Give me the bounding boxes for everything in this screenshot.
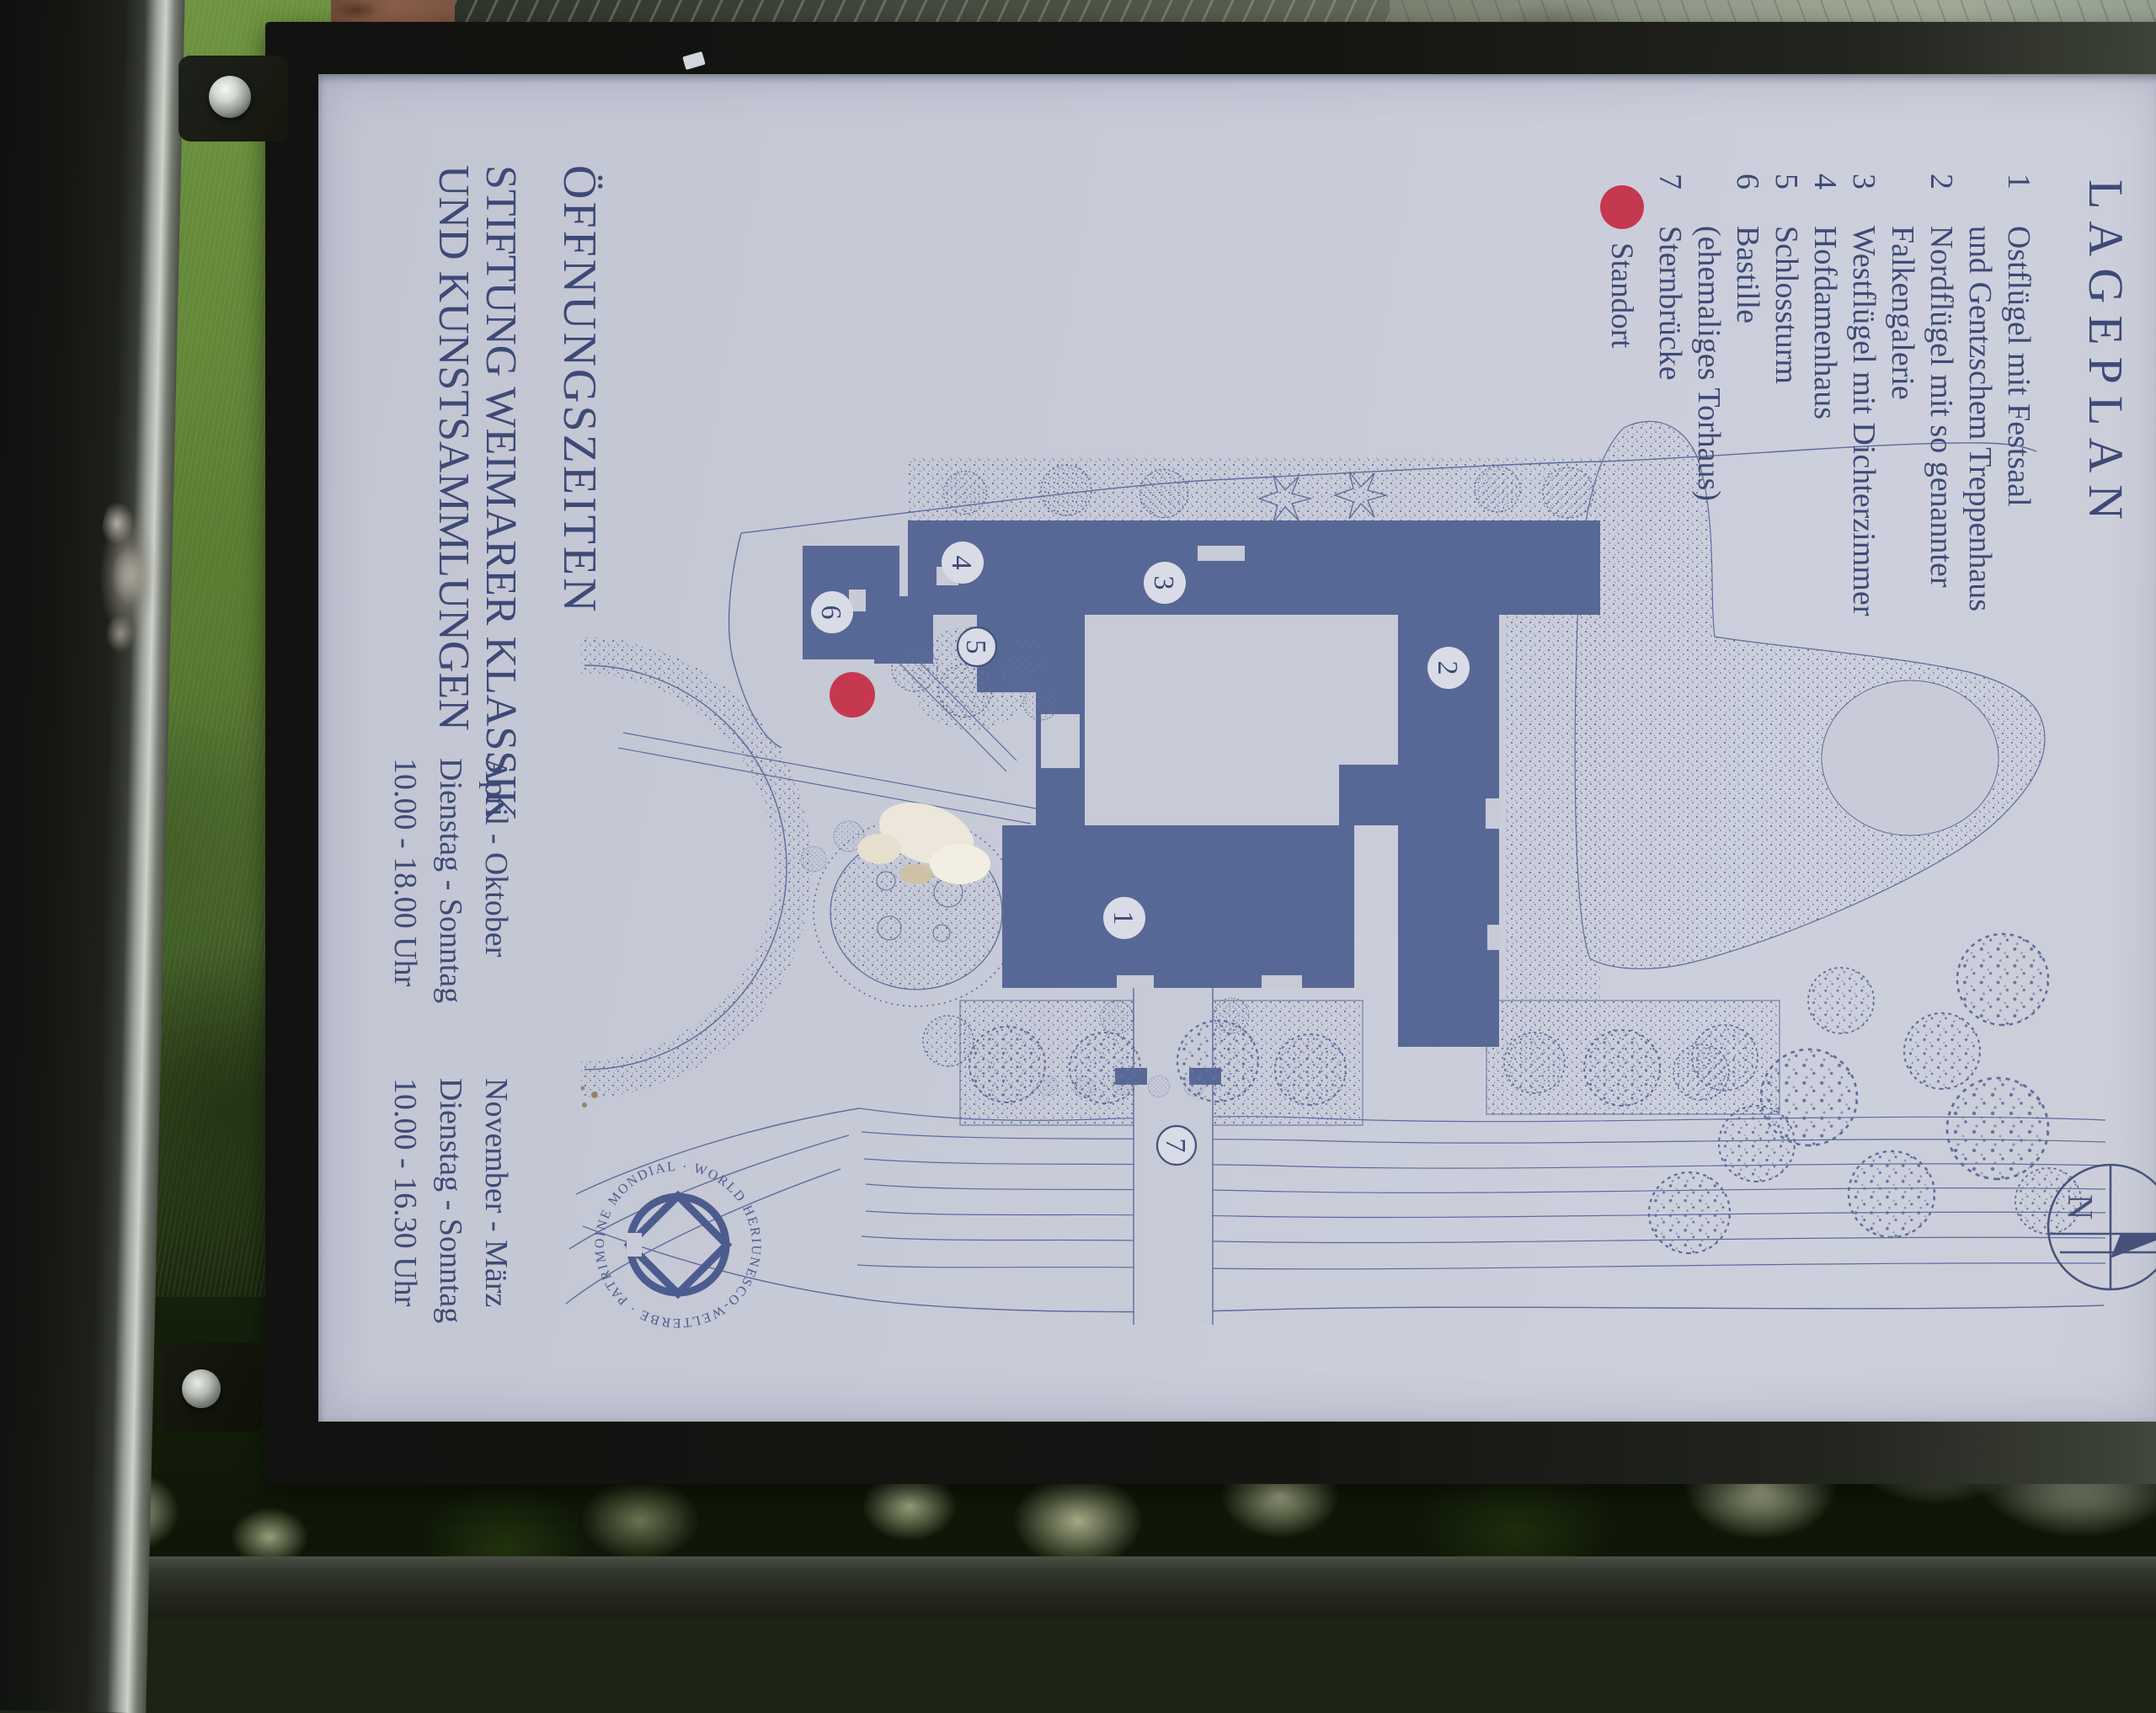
photo-of-site-plan-sign: { "sign": { "title": "LAGEPLAN", "legend…: [0, 0, 2156, 1617]
legend-row: 1Ostflügel mit Festsaal: [1999, 173, 2038, 616]
opening-hours-heading: ÖFFNUNGSZEITEN: [552, 165, 606, 615]
legend-row: 5Schlossturm: [1767, 173, 1806, 616]
legend-text: (ehemaliges Torhaus): [1689, 226, 1728, 501]
summer-period: April - Oktober: [473, 758, 519, 1003]
legend-row: 6Bastille: [1728, 173, 1767, 616]
map-standort-dot: [830, 672, 875, 718]
legend-row: 3Westflügel mit Dichterzimmer: [1844, 173, 1883, 616]
opening-column-winter: November - März Dienstag - Sonntag 10.00…: [382, 1078, 519, 1323]
legend-text: Nordflügel mit so genannter: [1922, 226, 1961, 588]
legend-row: und Gentzschem Treppenhaus: [1961, 173, 1999, 616]
winter-hours: 10.00 - 16.30 Uhr: [382, 1078, 428, 1323]
organization-name-line2: UND KUNSTSAMMLUNGEN: [429, 165, 478, 731]
legend-row: 4Hofdamenhaus: [1806, 173, 1844, 616]
legend-text: Schlossturm: [1767, 226, 1806, 384]
map-marker-label-6: 6: [815, 606, 846, 620]
map-marker-label-4: 4: [946, 556, 977, 570]
page-title: LAGEPLAN: [2078, 179, 2134, 531]
standort-label: Standort: [1604, 243, 1641, 348]
legend-number: [1961, 173, 1999, 226]
legend-text: Falkengalerie: [1883, 226, 1922, 400]
post-paint-scuff: [95, 483, 160, 668]
legend-number: 4: [1806, 173, 1844, 226]
legend-number: 1: [1999, 173, 2038, 226]
legend-text: Westflügel mit Dichterzimmer: [1844, 226, 1883, 616]
legend-list: 1Ostflügel mit Festsaalund Gentzschem Tr…: [1651, 173, 2038, 616]
winter-period: November - März: [473, 1078, 519, 1323]
bolt-icon-top: [209, 76, 251, 118]
standort-row: Standort: [1600, 185, 1644, 348]
map-marker-label-1: 1: [1107, 911, 1139, 926]
sign-frame: N UNESCO-WELTERBE · PATRIMOINE MONDIAL ·…: [265, 22, 2156, 1484]
legend-text: Sternbrücke: [1651, 226, 1689, 381]
legend-row: 7Sternbrücke: [1651, 173, 1689, 616]
bottom-rail: [0, 1556, 2156, 1617]
legend-row: 2Nordflügel mit so genannter: [1922, 173, 1961, 616]
emblem-gap: [627, 1233, 642, 1257]
map-marker-label-2: 2: [1432, 661, 1463, 675]
legend-text: Bastille: [1728, 226, 1767, 323]
legend-text: Ostflügel mit Festsaal: [1999, 226, 2038, 507]
legend-number: 6: [1728, 173, 1767, 226]
legend-text: und Gentzschem Treppenhaus: [1961, 226, 1999, 611]
legend-number: 2: [1922, 173, 1961, 226]
bolt-icon-bottom: [182, 1369, 221, 1408]
standort-dot-icon: [1600, 185, 1644, 229]
map-marker-label-5: 5: [960, 640, 991, 654]
legend-number: 3: [1844, 173, 1883, 226]
legend-number: [1689, 173, 1728, 226]
legend-row: (ehemaliges Torhaus): [1689, 173, 1728, 616]
legend-number: 7: [1651, 173, 1689, 226]
map-marker-label-7: 7: [1160, 1139, 1191, 1153]
legend-number: [1883, 173, 1922, 226]
opening-column-summer: April - Oktober Dienstag - Sonntag 10.00…: [382, 758, 519, 1003]
winter-days: Dienstag - Sonntag: [428, 1078, 473, 1323]
sign-panel: N UNESCO-WELTERBE · PATRIMOINE MONDIAL ·…: [318, 74, 2156, 1422]
summer-days: Dienstag - Sonntag: [428, 758, 473, 1003]
north-label: N: [2060, 1194, 2099, 1219]
organization-name-line1: STIFTUNG WEIMARER KLASSIK: [476, 165, 526, 821]
map-marker-label-3: 3: [1148, 576, 1179, 590]
sign-content: N UNESCO-WELTERBE · PATRIMOINE MONDIAL ·…: [318, 74, 2156, 1422]
legend-text: Hofdamenhaus: [1806, 226, 1844, 419]
legend-number: 5: [1767, 173, 1806, 226]
summer-hours: 10.00 - 18.00 Uhr: [382, 758, 428, 1003]
legend-row: Falkengalerie: [1883, 173, 1922, 616]
